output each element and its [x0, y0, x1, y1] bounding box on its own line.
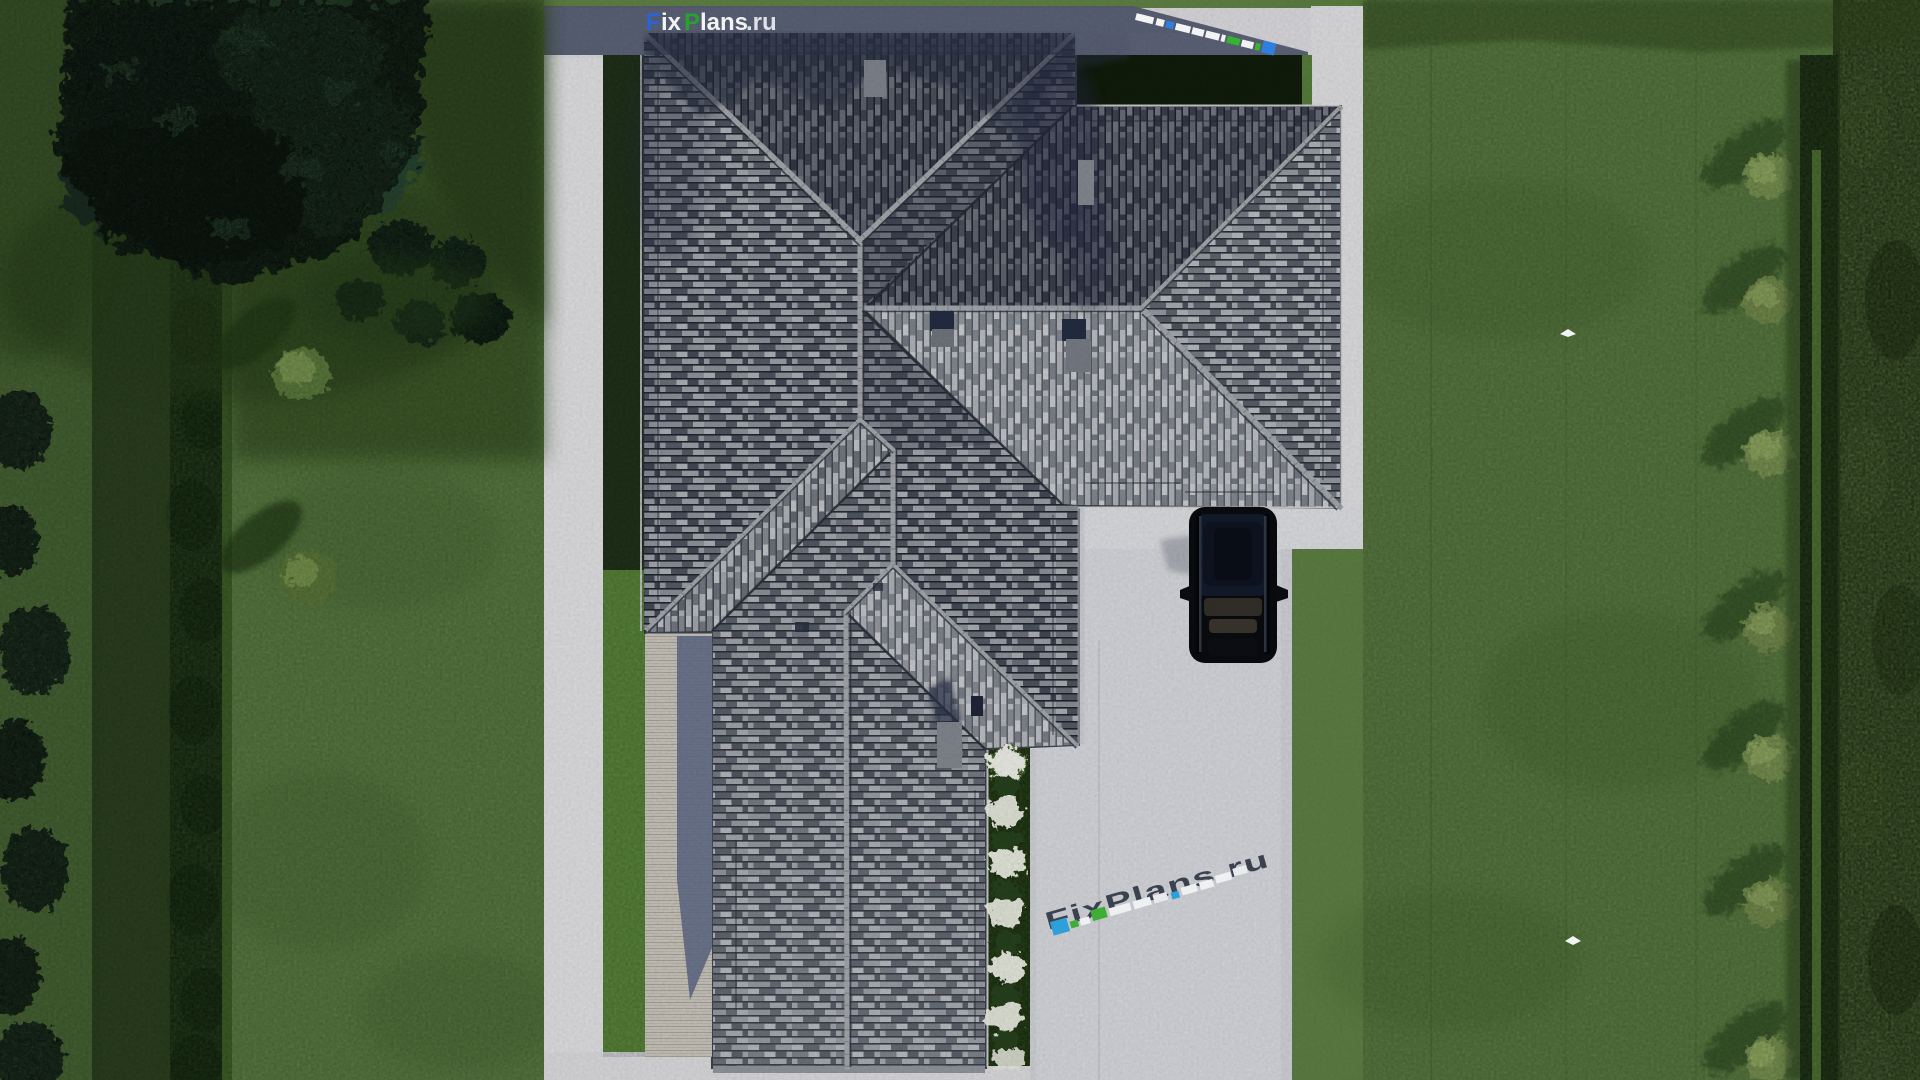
svg-text:.ru: .ru	[746, 9, 777, 36]
svg-text:P: P	[684, 9, 700, 36]
svg-text:lans: lans	[700, 9, 748, 36]
svg-text:ix: ix	[661, 9, 682, 36]
svg-text:F: F	[646, 9, 661, 36]
